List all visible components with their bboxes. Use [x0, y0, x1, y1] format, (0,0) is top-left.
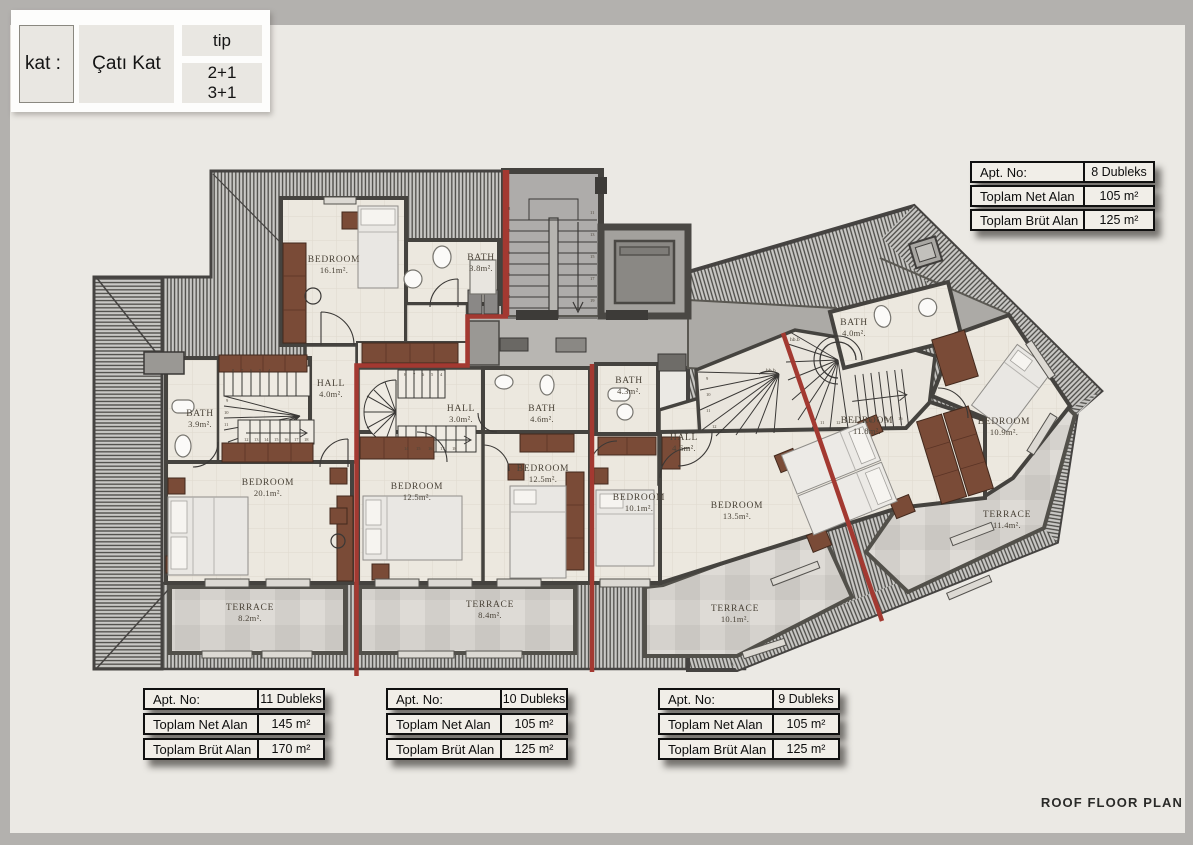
svg-text:HALL: HALL	[670, 433, 698, 443]
svg-text:BATH: BATH	[528, 404, 556, 414]
svg-text:12.5m².: 12.5m².	[529, 474, 557, 484]
svg-text:13: 13	[254, 437, 259, 442]
svg-text:TERRACE: TERRACE	[711, 604, 759, 614]
svg-text:4.0m².: 4.0m².	[842, 328, 866, 338]
svg-text:16: 16	[428, 446, 433, 451]
svg-text:BEDROOM: BEDROOM	[391, 482, 443, 492]
svg-text:3.8m².: 3.8m².	[469, 263, 493, 273]
svg-text:4.6m².: 4.6m².	[672, 443, 696, 453]
svg-text:10: 10	[224, 410, 229, 415]
svg-text:20.1m².: 20.1m².	[254, 488, 282, 498]
svg-text:hb.b: hb.b	[790, 337, 800, 343]
svg-text:BATH: BATH	[615, 376, 643, 386]
svg-text:BEDROOM: BEDROOM	[242, 478, 294, 488]
svg-text:12.5m².: 12.5m².	[403, 492, 431, 502]
svg-text:BEDROOM: BEDROOM	[711, 501, 763, 511]
svg-text:4.3m².: 4.3m².	[617, 386, 641, 396]
svg-text:13: 13	[590, 232, 595, 237]
svg-text:11: 11	[706, 408, 710, 413]
svg-text:11: 11	[590, 210, 594, 215]
svg-text:TERRACE: TERRACE	[466, 600, 514, 610]
svg-text:TERRACE: TERRACE	[983, 510, 1031, 520]
svg-text:3.9m².: 3.9m².	[188, 419, 212, 429]
svg-text:BEDROOM: BEDROOM	[978, 417, 1030, 427]
svg-text:HALL: HALL	[317, 379, 345, 389]
svg-text:4.6m².: 4.6m².	[530, 414, 554, 424]
svg-text:TERRACE: TERRACE	[226, 603, 274, 613]
svg-text:BATH: BATH	[840, 318, 868, 328]
svg-text:12: 12	[712, 424, 717, 429]
svg-text:11: 11	[224, 422, 228, 427]
svg-text:14: 14	[264, 437, 269, 442]
svg-text:17: 17	[590, 276, 595, 281]
svg-text:17: 17	[440, 446, 445, 451]
svg-text:10.9m².: 10.9m².	[990, 427, 1018, 437]
svg-text:16: 16	[898, 416, 903, 421]
svg-text:11.4m².: 11.4m².	[993, 520, 1021, 530]
svg-text:11: 11	[820, 420, 824, 425]
svg-text:10: 10	[706, 392, 711, 397]
svg-text:4.0m².: 4.0m².	[319, 389, 343, 399]
svg-text:10.1m².: 10.1m².	[625, 503, 653, 513]
svg-text:BEDROOM: BEDROOM	[308, 255, 360, 265]
svg-text:17: 17	[294, 437, 299, 442]
svg-text:14: 14	[404, 446, 409, 451]
svg-text:16: 16	[284, 437, 289, 442]
svg-text:3.0m².: 3.0m².	[449, 414, 473, 424]
svg-text:19: 19	[590, 298, 595, 303]
svg-text:BATH: BATH	[467, 253, 495, 263]
svg-text:18: 18	[304, 437, 309, 442]
svg-text:13.5m².: 13.5m².	[723, 511, 751, 521]
svg-text:HALL: HALL	[447, 404, 475, 414]
svg-text:10.1m².: 10.1m².	[721, 614, 749, 624]
svg-text:BATH: BATH	[186, 409, 214, 419]
svg-text:18: 18	[452, 446, 457, 451]
svg-text:16.1m².: 16.1m².	[320, 265, 348, 275]
svg-text:8.4m².: 8.4m².	[478, 610, 502, 620]
svg-text:15: 15	[274, 437, 279, 442]
svg-text:15: 15	[416, 446, 421, 451]
svg-text:8.2m².: 8.2m².	[238, 613, 262, 623]
svg-text:15: 15	[590, 254, 595, 259]
svg-text:BEDROOM: BEDROOM	[613, 493, 665, 503]
svg-text:12: 12	[244, 437, 249, 442]
svg-text:BEDROOM: BEDROOM	[517, 464, 569, 474]
svg-text:BEDROOM: BEDROOM	[841, 416, 893, 426]
svg-text:hb.b: hb.b	[766, 368, 776, 374]
svg-text:11.8m².: 11.8m².	[853, 426, 881, 436]
